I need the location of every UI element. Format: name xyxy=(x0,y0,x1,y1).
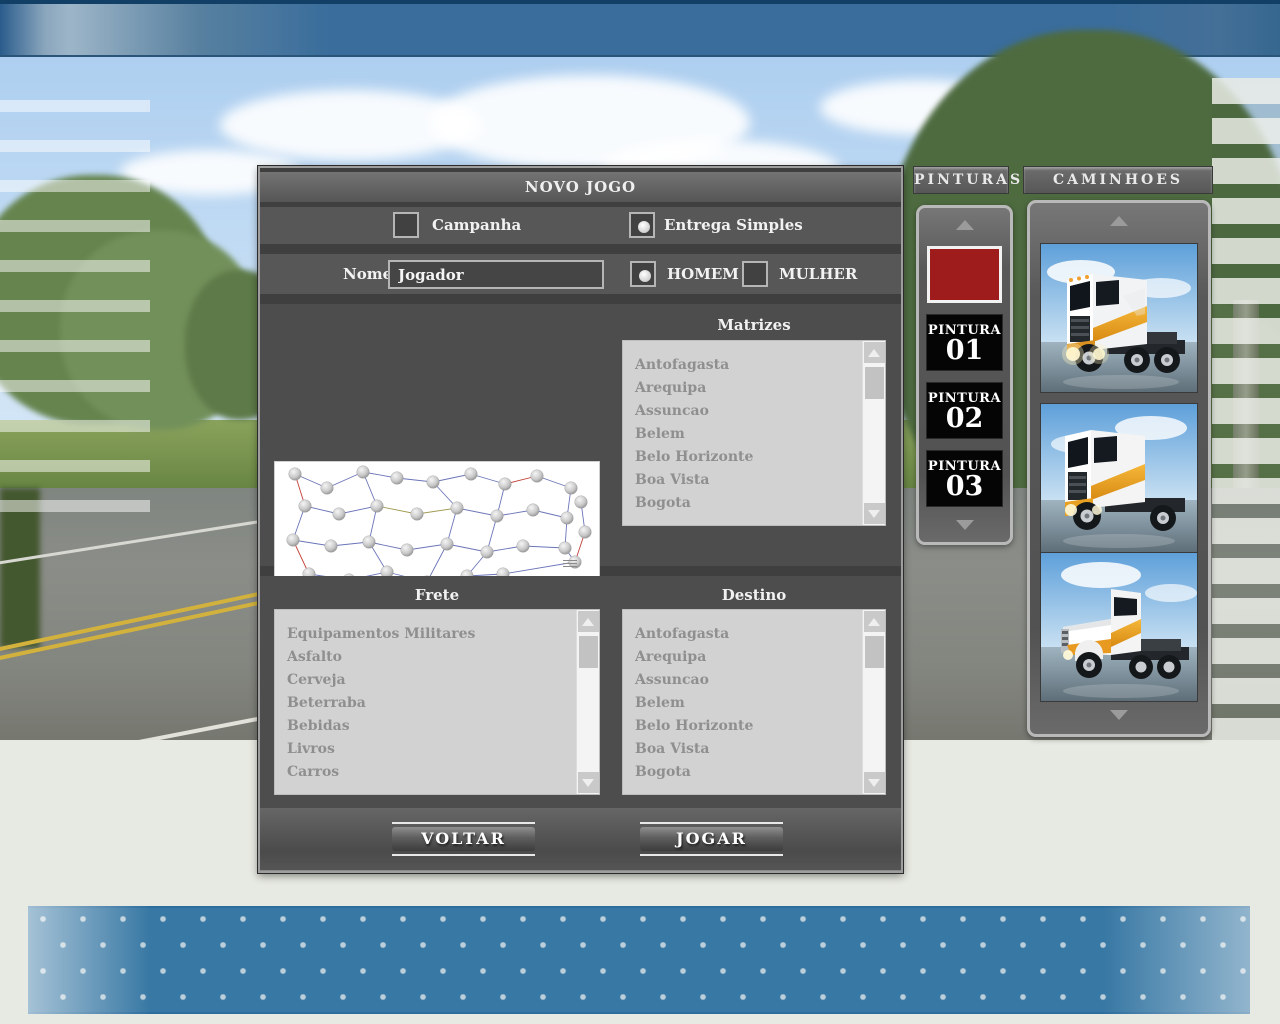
list-item[interactable]: Bebidas xyxy=(275,715,575,738)
truck-thumbnail-1[interactable] xyxy=(1040,243,1198,393)
list-item[interactable]: Beterraba xyxy=(275,692,575,715)
arrow-up-icon xyxy=(868,349,880,357)
bottom-band-sheen xyxy=(28,906,1250,1014)
mode-row: Campanha Entrega Simples xyxy=(260,207,901,244)
caminhoes-header: CAMINHOES xyxy=(1023,166,1213,194)
campanha-checkbox[interactable] xyxy=(393,212,419,238)
pinturas-scroll-up-arrow[interactable] xyxy=(956,220,974,230)
homem-label: HOMEM xyxy=(667,265,739,283)
scroll-down-button[interactable] xyxy=(864,503,885,524)
voltar-button[interactable]: VOLTAR xyxy=(392,822,535,856)
arrow-down-icon xyxy=(868,779,880,787)
list-item[interactable]: Belem xyxy=(623,423,861,446)
destino-list: AntofagastaArequipaAssuncaoBelemBelo Hor… xyxy=(623,623,861,784)
pintura-tile[interactable]: PINTURA 03 xyxy=(926,450,1003,507)
matrizes-scrollbar[interactable] xyxy=(862,341,885,525)
caminhoes-panel xyxy=(1027,200,1211,737)
matrizes-listbox: AntofagastaArequipaAssuncaoBelemBelo Hor… xyxy=(622,340,886,526)
list-item[interactable]: Antofagasta xyxy=(623,354,861,377)
name-row: Nome HOMEM MULHER xyxy=(260,254,901,294)
entrega-simples-radio[interactable] xyxy=(629,212,655,238)
truck-thumbnail-2[interactable] xyxy=(1040,403,1198,553)
frete-destino-section: Frete Destino Equipamentos MilitaresAsfa… xyxy=(260,576,901,808)
list-item[interactable]: Cerveja xyxy=(275,669,575,692)
radio-dot xyxy=(639,270,651,282)
matrizes-list: AntofagastaArequipaAssuncaoBelemBelo Hor… xyxy=(623,354,861,515)
jogar-button[interactable]: JOGAR xyxy=(640,822,783,856)
map-key-lines xyxy=(563,558,577,569)
arrow-up-icon xyxy=(582,618,594,626)
scroll-thumb[interactable] xyxy=(865,367,884,399)
list-item[interactable]: Assuncao xyxy=(623,669,861,692)
selected-paint-swatch[interactable] xyxy=(927,246,1002,303)
list-item[interactable]: Arequipa xyxy=(623,377,861,400)
pinturas-panel: PINTURA 01 PINTURA 02 PINTURA 03 xyxy=(916,205,1013,545)
campanha-label: Campanha xyxy=(432,216,521,234)
nome-input[interactable] xyxy=(388,260,604,289)
pinturas-header: PINTURAS xyxy=(913,166,1009,194)
mulher-label: MULHER xyxy=(779,265,857,283)
arrow-down-icon xyxy=(582,779,594,787)
list-item[interactable]: Livros xyxy=(275,738,575,761)
nome-label: Nome xyxy=(343,265,392,283)
scroll-up-button[interactable] xyxy=(864,342,885,363)
glass-stripes-right xyxy=(1212,78,1280,740)
caminhoes-scroll-up-arrow[interactable] xyxy=(1110,216,1128,226)
truck-thumbnail-3[interactable] xyxy=(1040,552,1198,702)
pintura-tile[interactable]: PINTURA 02 xyxy=(926,382,1003,439)
list-item[interactable]: Bogota xyxy=(623,492,861,515)
frete-title: Frete xyxy=(337,586,537,604)
caminhoes-scroll-down-arrow[interactable] xyxy=(1110,710,1128,720)
list-item[interactable]: Belo Horizonte xyxy=(623,446,861,469)
destino-listbox: AntofagastaArequipaAssuncaoBelemBelo Hor… xyxy=(622,609,886,795)
arrow-up-icon xyxy=(868,618,880,626)
list-item[interactable]: Carros xyxy=(275,761,575,784)
list-item[interactable]: Arequipa xyxy=(623,646,861,669)
destino-scrollbar[interactable] xyxy=(862,610,885,794)
homem-radio[interactable] xyxy=(630,261,656,287)
arrow-down-icon xyxy=(868,510,880,518)
dialog-title: NOVO JOGO xyxy=(260,172,901,202)
frete-scrollbar[interactable] xyxy=(576,610,599,794)
scroll-thumb[interactable] xyxy=(865,636,884,668)
dialog-footer: VOLTAR JOGAR xyxy=(260,808,901,871)
scroll-down-button[interactable] xyxy=(864,772,885,793)
scroll-up-button[interactable] xyxy=(578,611,599,632)
mulher-checkbox[interactable] xyxy=(742,261,768,287)
frete-list: Equipamentos MilitaresAsfaltoCervejaBete… xyxy=(275,623,575,784)
list-item[interactable]: Belo Horizonte xyxy=(623,715,861,738)
glass-stripes-left xyxy=(0,100,150,530)
map-section: Matrizes MINIMAPA V5.0 MAPA EXPLORANDO A… xyxy=(260,304,901,566)
matrizes-title: Matrizes xyxy=(654,316,854,334)
entrega-simples-label: Entrega Simples xyxy=(664,216,803,234)
list-item[interactable]: Asfalto xyxy=(275,646,575,669)
list-item[interactable]: Antofagasta xyxy=(623,623,861,646)
radio-dot xyxy=(638,221,650,233)
pinturas-scroll-down-arrow[interactable] xyxy=(956,520,974,530)
list-item[interactable]: Bogota xyxy=(623,761,861,784)
list-item[interactable]: Assuncao xyxy=(623,400,861,423)
destino-title: Destino xyxy=(654,586,854,604)
novo-jogo-dialog: NOVO JOGO Campanha Entrega Simples Nome … xyxy=(258,166,903,873)
list-item[interactable]: Equipamentos Militares xyxy=(275,623,575,646)
scroll-down-button[interactable] xyxy=(578,772,599,793)
list-item[interactable]: Boa Vista xyxy=(623,738,861,761)
scroll-up-button[interactable] xyxy=(864,611,885,632)
pintura-tile[interactable]: PINTURA 01 xyxy=(926,314,1003,371)
frete-listbox: Equipamentos MilitaresAsfaltoCervejaBete… xyxy=(274,609,600,795)
list-item[interactable]: Belem xyxy=(623,692,861,715)
list-item[interactable]: Boa Vista xyxy=(623,469,861,492)
scroll-thumb[interactable] xyxy=(579,636,598,668)
